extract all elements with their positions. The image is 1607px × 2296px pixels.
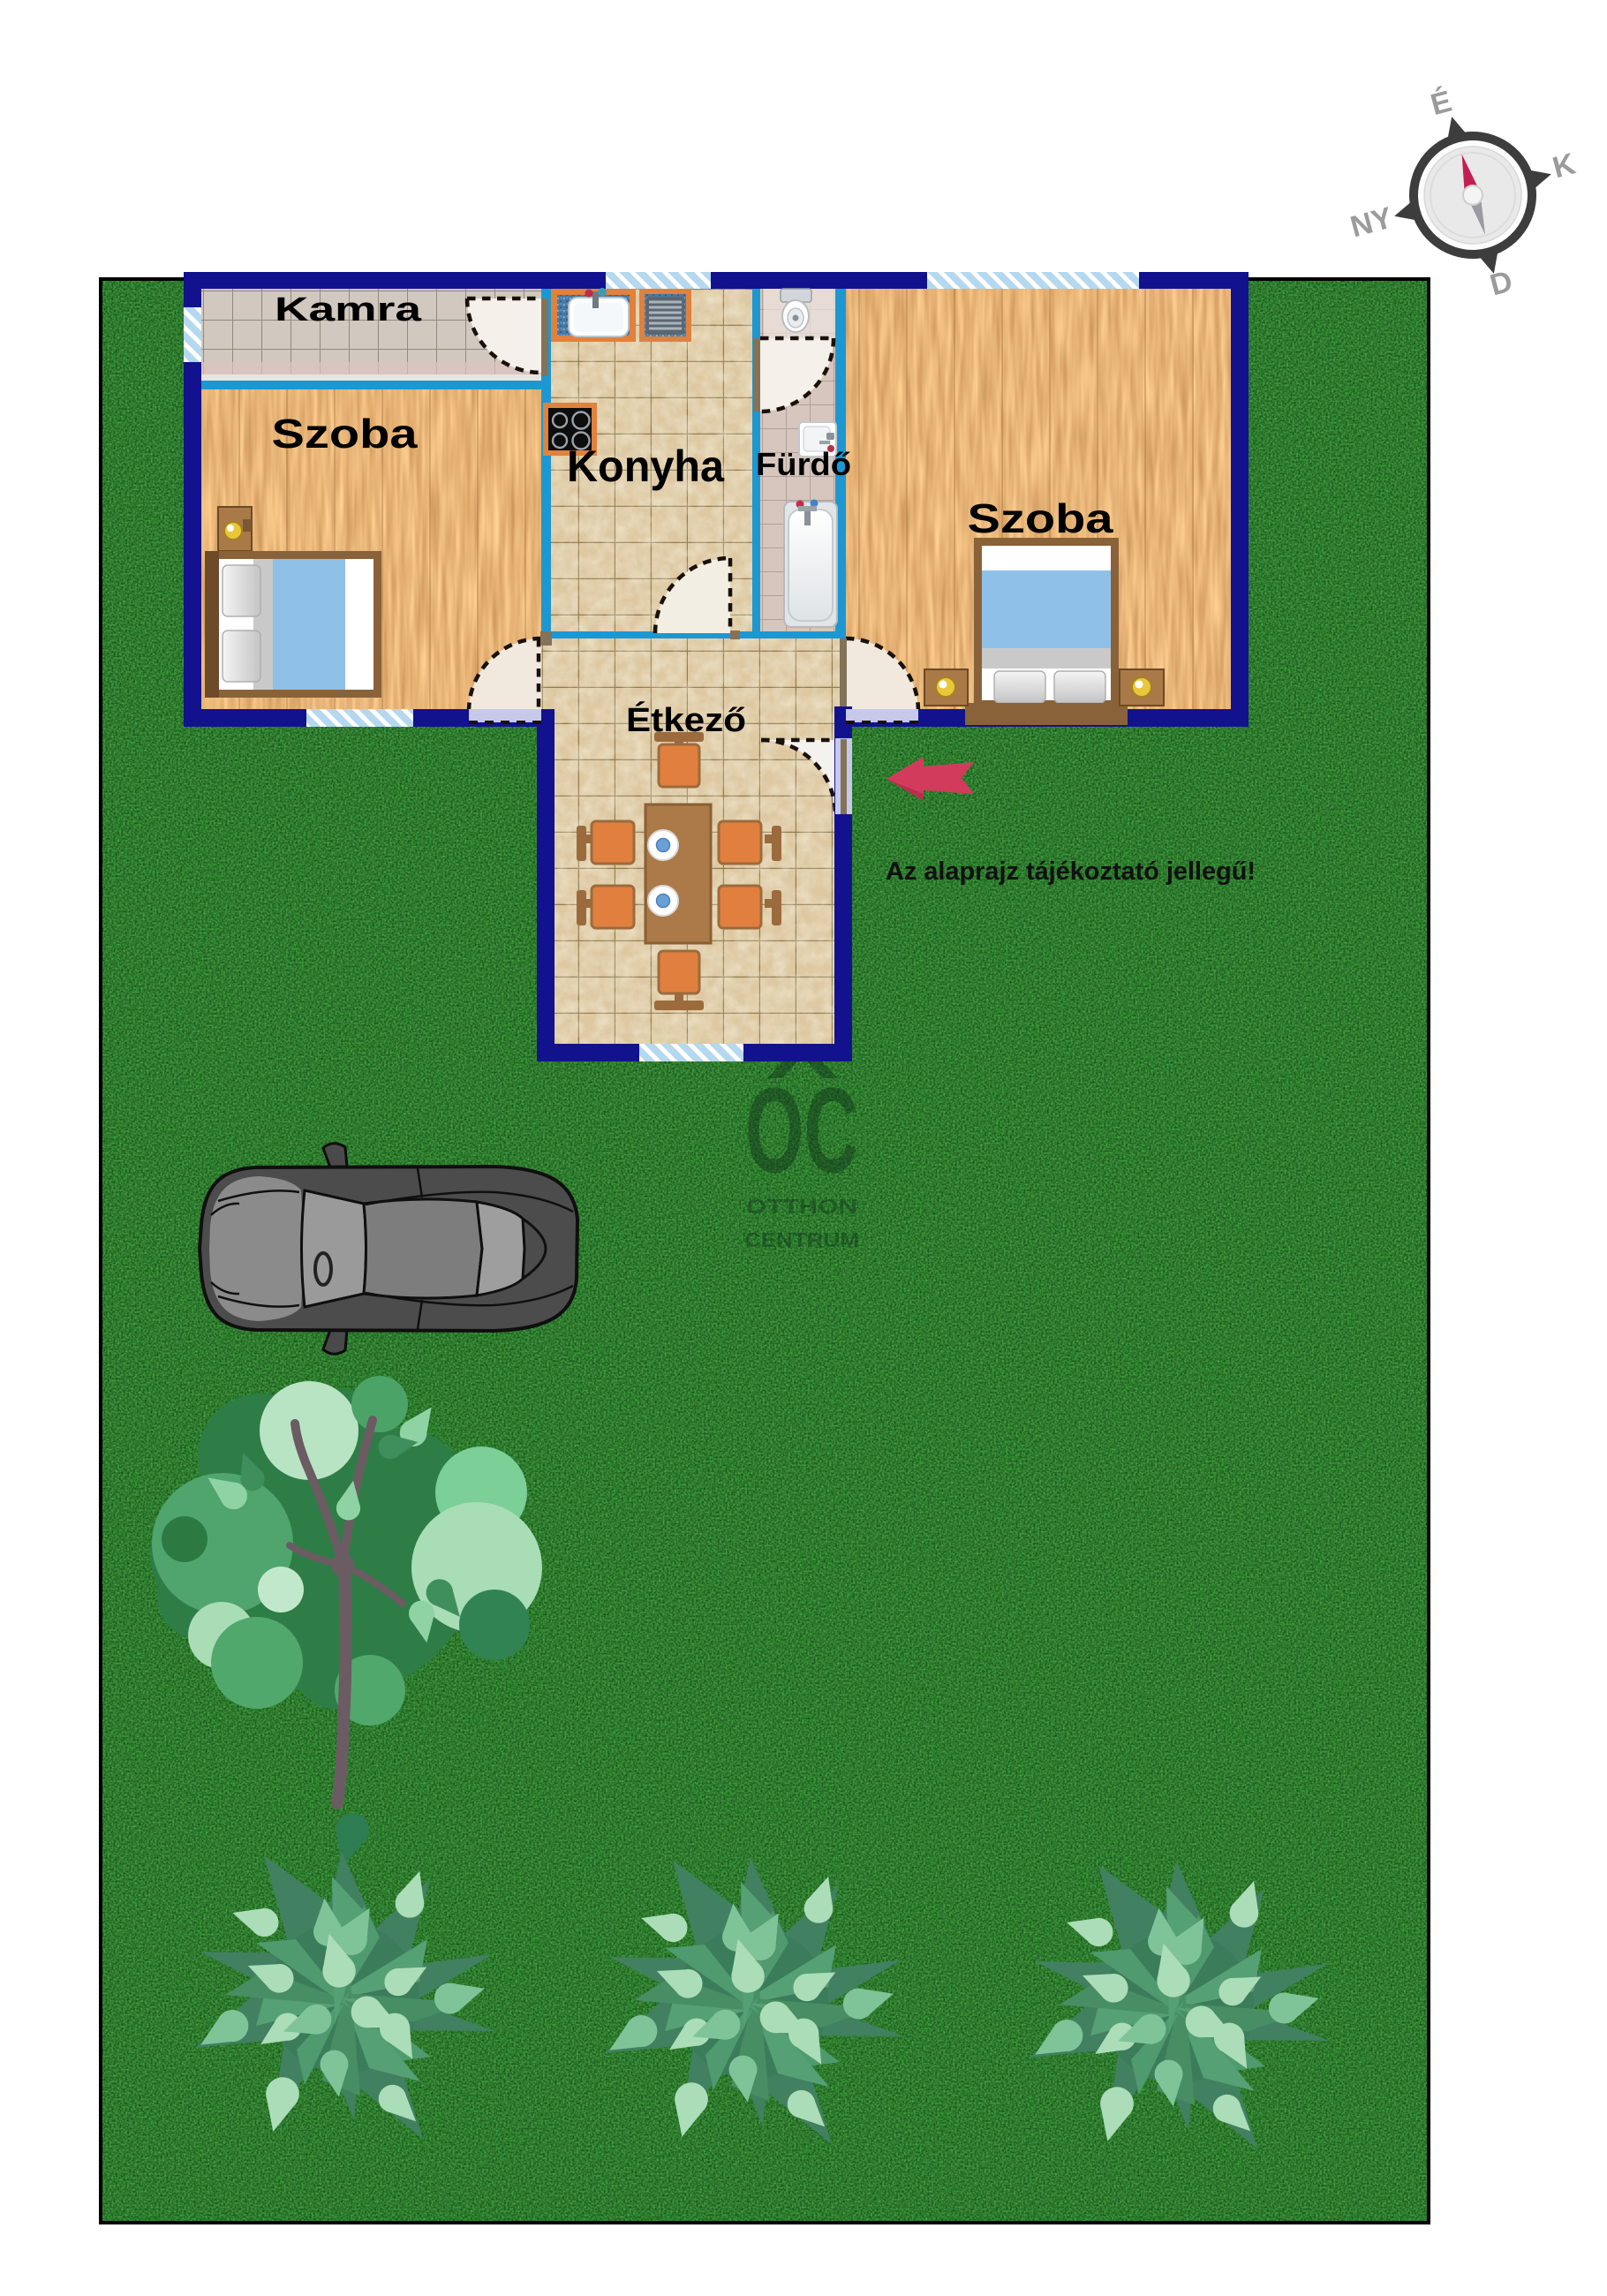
svg-text:Kamra: Kamra [275, 291, 422, 329]
svg-text:Étkező: Étkező [626, 700, 746, 739]
svg-text:OC: OC [745, 1063, 858, 1198]
svg-text:CENTRUM: CENTRUM [744, 1228, 859, 1251]
svg-text:Az alaprajz tájékoztató jelleg: Az alaprajz tájékoztató jellegű! [886, 857, 1256, 886]
svg-text:Fürdő: Fürdő [756, 446, 851, 482]
svg-text:Szoba: Szoba [968, 495, 1113, 541]
svg-text:OTTHON: OTTHON [746, 1195, 857, 1218]
svg-text:Konyha: Konyha [567, 442, 725, 491]
svg-text:Szoba: Szoba [272, 411, 418, 457]
